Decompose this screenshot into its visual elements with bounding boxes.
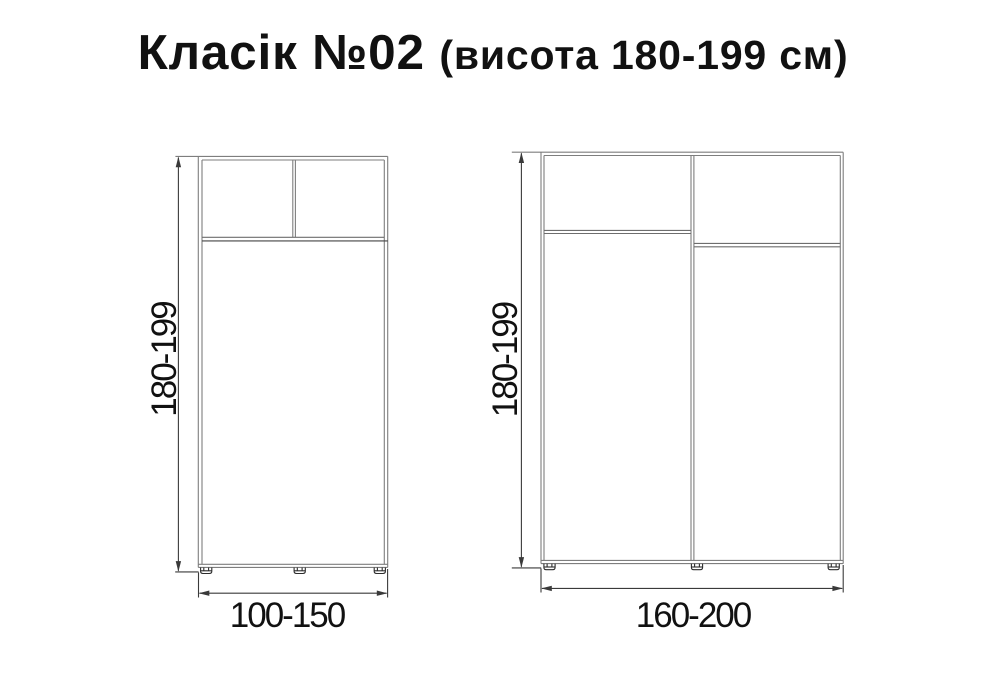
svg-text:Класік №02 (висота 180-199 см): Класік №02 (висота 180-199 см) [138, 25, 849, 80]
svg-text:100-150: 100-150 [230, 596, 346, 635]
svg-text:180-199: 180-199 [145, 302, 184, 417]
svg-text:160-200: 160-200 [636, 596, 752, 635]
svg-text:180-199: 180-199 [486, 302, 525, 417]
